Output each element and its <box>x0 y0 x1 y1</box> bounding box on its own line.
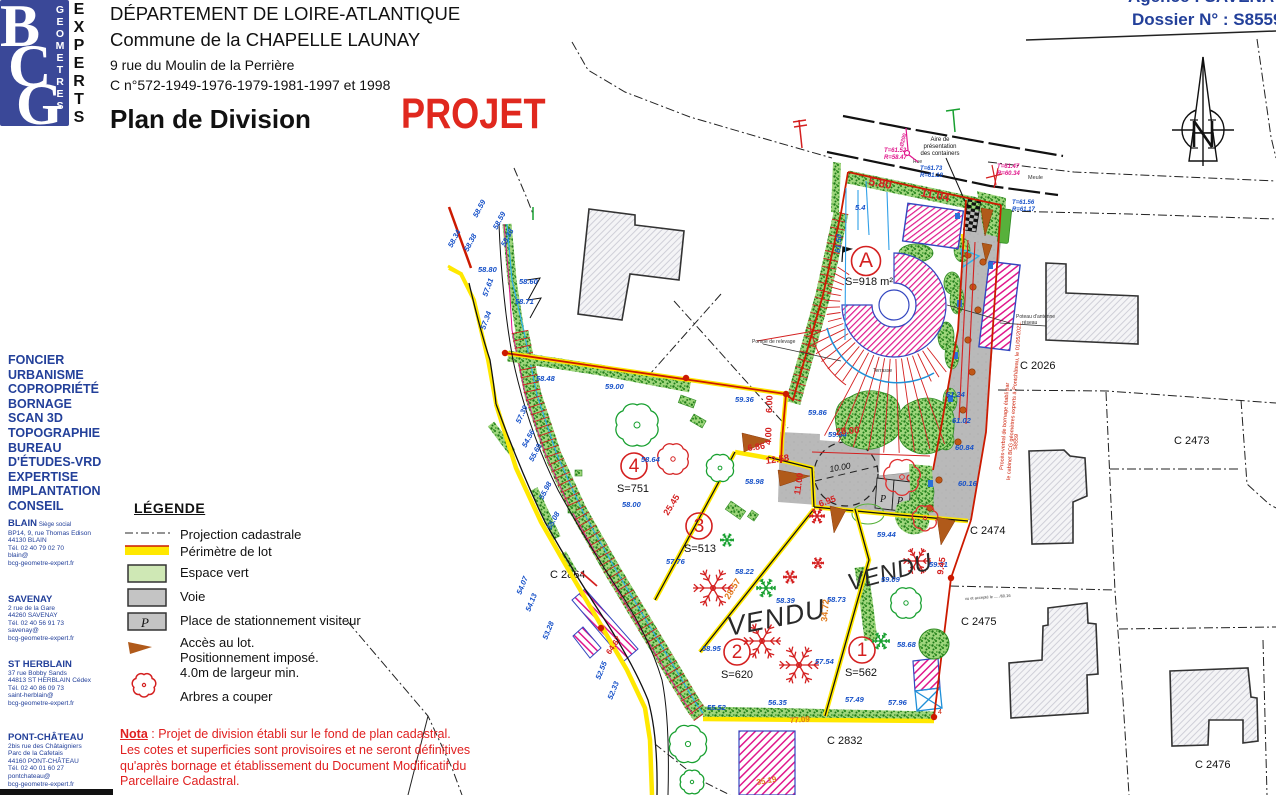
svg-text:S=751: S=751 <box>617 483 649 495</box>
svg-text:E: E <box>56 52 63 64</box>
svg-text:59.44: 59.44 <box>877 530 897 539</box>
svg-text:vu et accepté le .... /60.16: vu et accepté le .... /60.16 <box>965 593 1012 601</box>
svg-text:C 2475: C 2475 <box>961 616 996 628</box>
svg-text:61.02: 61.02 <box>952 416 972 425</box>
svg-text:Pompe de relevage: Pompe de relevage <box>752 339 796 345</box>
svg-text:3: 3 <box>694 516 705 537</box>
svg-text:52.55: 52.55 <box>594 659 610 681</box>
svg-text:58.39: 58.39 <box>776 596 796 605</box>
svg-text:C 2026: C 2026 <box>1020 360 1055 372</box>
svg-text:C 2473: C 2473 <box>1174 435 1209 447</box>
svg-text:58.00: 58.00 <box>622 500 642 509</box>
svg-text:A: A <box>859 249 873 272</box>
svg-text:E: E <box>74 1 85 18</box>
svg-text:M: M <box>56 40 65 52</box>
svg-text:57.49: 57.49 <box>845 695 865 704</box>
svg-text:57.34: 57.34 <box>478 309 493 330</box>
svg-text:4: 4 <box>629 456 640 477</box>
svg-text:T: T <box>74 91 84 108</box>
svg-text:P: P <box>140 615 149 630</box>
svg-text:34.72: 34.72 <box>819 599 831 622</box>
svg-text:P: P <box>74 37 85 54</box>
svg-text:20.00: 20.00 <box>835 425 860 438</box>
svg-text:6.00: 6.00 <box>764 395 775 413</box>
svg-text:58.38: 58.38 <box>499 226 516 248</box>
svg-text:61.24: 61.24 <box>946 390 966 399</box>
svg-text:4: 4 <box>938 709 942 716</box>
svg-text:59.36: 59.36 <box>735 395 755 404</box>
svg-text:60.84: 60.84 <box>955 443 975 452</box>
svg-text:O: O <box>56 28 64 40</box>
svg-text:VENDU: VENDU <box>845 548 936 597</box>
svg-text:P: P <box>879 494 886 505</box>
svg-text:58.22: 58.22 <box>735 567 755 576</box>
svg-text:S=918 m²: S=918 m² <box>845 276 893 288</box>
svg-text:G: G <box>56 4 64 16</box>
svg-text:E: E <box>74 55 85 72</box>
svg-text:R=58.47: R=58.47 <box>884 155 908 161</box>
svg-text:58.64: 58.64 <box>641 455 661 464</box>
svg-text:R=60.34: R=60.34 <box>997 171 1021 177</box>
svg-text:des containers: des containers <box>920 151 959 157</box>
svg-text:T=61.47: T=61.47 <box>997 164 1020 170</box>
svg-text:53.28: 53.28 <box>541 619 557 641</box>
svg-text:58.59: 58.59 <box>471 197 488 219</box>
svg-text:Terrasse: Terrasse <box>873 368 892 374</box>
svg-text:1: 1 <box>857 640 868 661</box>
svg-text:25.45: 25.45 <box>661 493 681 517</box>
svg-text:58.60: 58.60 <box>519 277 539 286</box>
svg-text:58.68: 58.68 <box>897 640 917 649</box>
svg-text:55.98: 55.98 <box>537 479 554 501</box>
svg-text:Aire de: Aire de <box>930 137 950 143</box>
svg-text:58.98: 58.98 <box>745 477 765 486</box>
svg-text:52.33: 52.33 <box>606 679 622 701</box>
svg-text:S8559: S8559 <box>1013 434 1020 450</box>
svg-text:54.13: 54.13 <box>524 591 540 613</box>
svg-text:61.50: 61.50 <box>833 233 844 253</box>
svg-text:6.86: 6.86 <box>747 441 766 453</box>
svg-text:C 2832: C 2832 <box>827 735 862 747</box>
svg-text:S=620: S=620 <box>721 669 753 681</box>
svg-text:59.00: 59.00 <box>605 382 625 391</box>
svg-text:11.04: 11.04 <box>919 185 951 204</box>
svg-text:R=61.17: R=61.17 <box>1012 207 1036 213</box>
svg-text:77.09: 77.09 <box>790 715 811 725</box>
svg-text:X: X <box>74 19 85 36</box>
svg-text:R: R <box>56 76 64 88</box>
svg-text:S=513: S=513 <box>684 543 716 555</box>
svg-text:S: S <box>74 109 85 126</box>
svg-text:57.54: 57.54 <box>815 657 835 666</box>
svg-text:T=61.52: T=61.52 <box>884 148 907 154</box>
svg-text:58.71: 58.71 <box>515 297 534 306</box>
svg-text:59.09: 59.09 <box>881 575 901 584</box>
svg-text:S=562: S=562 <box>845 667 877 679</box>
svg-text:4.00: 4.00 <box>763 427 774 445</box>
svg-text:57.96: 57.96 <box>888 698 908 707</box>
svg-text:57.76: 57.76 <box>666 557 686 566</box>
svg-text:57.61: 57.61 <box>480 277 495 298</box>
svg-text:S: S <box>56 100 63 112</box>
svg-text:60.16: 60.16 <box>958 479 978 488</box>
svg-text:58.80: 58.80 <box>478 265 498 274</box>
svg-text:C 2474: C 2474 <box>970 525 1005 537</box>
svg-text:28.57: 28.57 <box>722 577 742 601</box>
svg-text:E: E <box>56 16 63 28</box>
svg-text:59.86: 59.86 <box>808 408 828 417</box>
svg-text:T=61.73: T=61.73 <box>920 166 943 172</box>
svg-text:54.07: 54.07 <box>515 574 531 596</box>
svg-text:9.45: 9.45 <box>935 557 947 576</box>
svg-text:2: 2 <box>732 642 743 663</box>
svg-text:Meule: Meule <box>1028 175 1043 181</box>
svg-text:R: R <box>73 73 85 90</box>
svg-text:56.35: 56.35 <box>768 698 788 707</box>
svg-text:58.38: 58.38 <box>462 231 479 253</box>
svg-text:58.48: 58.48 <box>536 374 556 383</box>
svg-text:T=61.56: T=61.56 <box>1012 200 1035 206</box>
svg-text:5.80: 5.80 <box>867 174 893 192</box>
svg-text:58.95: 58.95 <box>702 644 722 653</box>
svg-text:5.4: 5.4 <box>855 203 866 212</box>
svg-text:55.52: 55.52 <box>707 703 727 712</box>
svg-text:C 2476: C 2476 <box>1195 759 1230 771</box>
svg-text:R=61.10: R=61.10 <box>920 173 944 179</box>
svg-text:T: T <box>57 64 64 76</box>
svg-text:E: E <box>56 88 63 100</box>
svg-text:présentation: présentation <box>923 144 956 150</box>
